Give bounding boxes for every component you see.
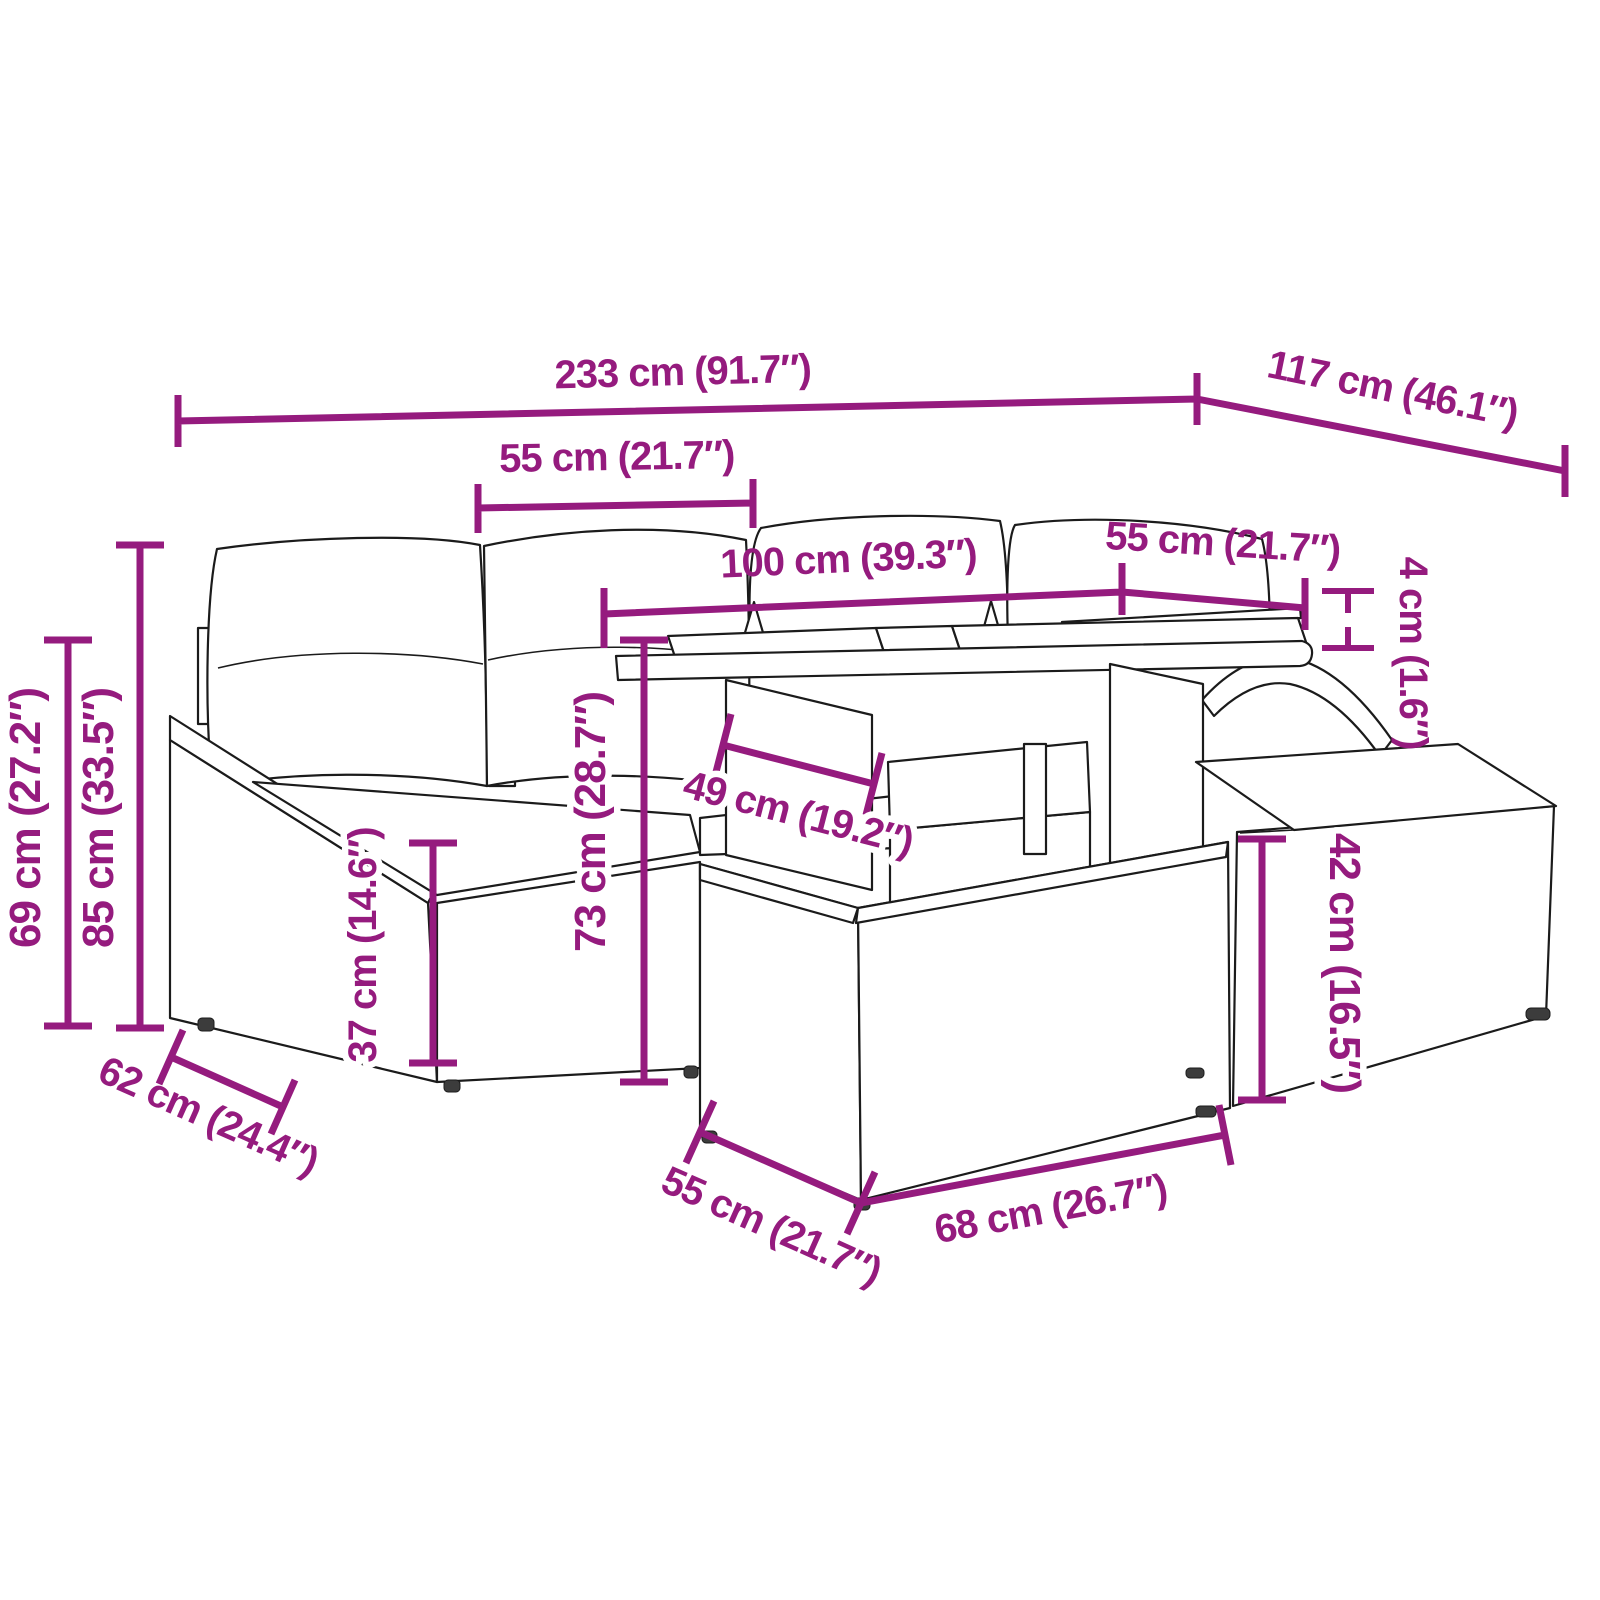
furniture-foot (1186, 1068, 1204, 1078)
dim-overall-width: 233 cm (91.7″) (178, 347, 1197, 447)
dim-label-stool-height: 42 cm (16.5″) (1320, 833, 1369, 1093)
furniture-foot (198, 1018, 214, 1031)
dim-label-back-height: 85 cm (33.5″) (74, 688, 123, 948)
dim-seat-width-top: 55 cm (21.7″) (478, 433, 753, 533)
diagram-canvas: 233 cm (91.7″) 117 cm (46.1″) 55 cm (21.… (0, 0, 1600, 1600)
dimension-diagram: 233 cm (91.7″) 117 cm (46.1″) 55 cm (21.… (0, 0, 1600, 1600)
furniture-foot (1526, 1008, 1550, 1020)
dim-label-seat-width-top: 55 cm (21.7″) (499, 433, 735, 481)
dim-label-overall-width: 233 cm (91.7″) (554, 347, 812, 398)
dim-label-seat-height: 37 cm (14.6″) (341, 827, 385, 1062)
dim-line-seat-width-top (478, 479, 753, 533)
dim-seat-depth: 62 cm (24.4″) (92, 1030, 325, 1184)
furniture-foot (1196, 1106, 1216, 1117)
dim-line-back-height (116, 545, 164, 1028)
table-back-post (1024, 744, 1046, 854)
dim-label-arm-height: 69 cm (27.2″) (1, 688, 50, 948)
dim-line-tabletop-thickness (1322, 591, 1374, 648)
dim-back-height: 85 cm (33.5″) (74, 545, 164, 1028)
dim-label-tabletop-thickness: 4 cm (1.6″) (1391, 557, 1435, 750)
furniture-foot (684, 1066, 698, 1078)
dim-label-stool-width-bottom: 68 cm (26.7″) (931, 1166, 1170, 1252)
furniture-foot (444, 1080, 460, 1092)
stool-right-body (1233, 806, 1554, 1106)
dim-label-table-height: 73 cm (28.7″) (566, 692, 615, 952)
dim-overall-depth: 117 cm (46.1″) (1197, 342, 1565, 497)
dim-label-seat-depth: 62 cm (24.4″) (92, 1048, 325, 1184)
lounger-backrest (1202, 657, 1392, 756)
